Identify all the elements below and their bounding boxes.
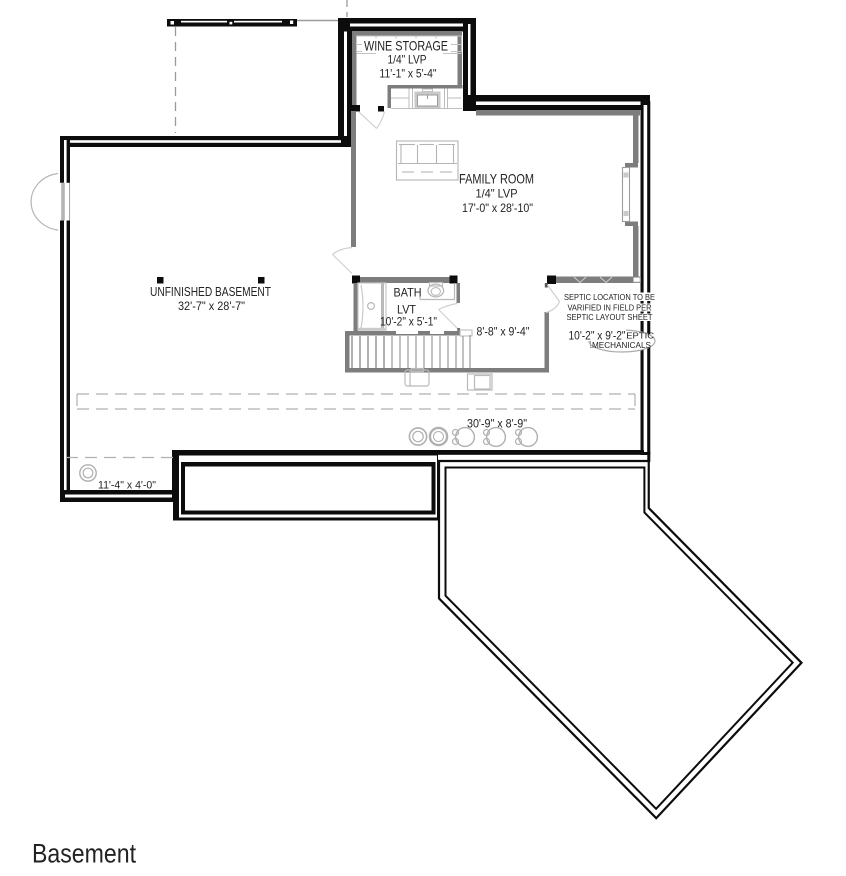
svg-text:17'-0" x 28'-10": 17'-0" x 28'-10"	[462, 201, 533, 215]
svg-text:1/4" LVP: 1/4" LVP	[476, 187, 518, 201]
svg-text:32'-7" x 28'-7": 32'-7" x 28'-7"	[178, 299, 245, 313]
svg-text:1/4" LVP: 1/4" LVP	[388, 53, 427, 67]
svg-text:FAMILY ROOM: FAMILY ROOM	[459, 172, 534, 187]
svg-text:SEPTIC LAYOUT SHEET: SEPTIC LAYOUT SHEET	[567, 313, 653, 322]
svg-text:VARIFIED IN FIELD PER: VARIFIED IN FIELD PER	[568, 304, 652, 313]
svg-text:10'-2" x 9'-2": 10'-2" x 9'-2"	[569, 329, 626, 343]
svg-text:UNFINISHED BASEMENT: UNFINISHED BASEMENT	[150, 284, 271, 299]
svg-text:BATH: BATH	[394, 286, 422, 300]
svg-text:11'-4" x 4'-0": 11'-4" x 4'-0"	[98, 480, 156, 492]
svg-text:30'-9" x 8'-9": 30'-9" x 8'-9"	[467, 417, 527, 431]
svg-text:10'-2" x 5'-1": 10'-2" x 5'-1"	[380, 315, 437, 329]
svg-text:WINE STORAGE: WINE STORAGE	[364, 39, 448, 54]
svg-text:SEPTIC LOCATION TO BE: SEPTIC LOCATION TO BE	[564, 293, 655, 302]
svg-text:8'-8" x 9'-4": 8'-8" x 9'-4"	[477, 325, 530, 339]
svg-text:Basement: Basement	[32, 839, 136, 869]
svg-text:11'-1" x 5'-4": 11'-1" x 5'-4"	[380, 67, 437, 81]
